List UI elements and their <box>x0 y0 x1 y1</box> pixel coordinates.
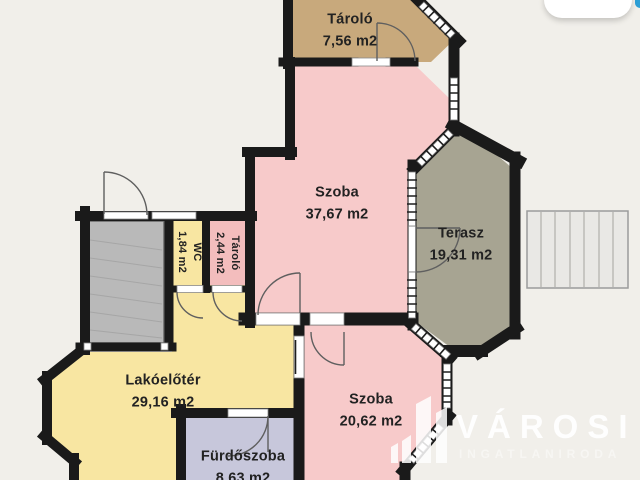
label-wc: WC1,84 m2 <box>174 231 204 273</box>
label-storage-top: Tároló7,56 m2 <box>323 9 378 53</box>
window-glazed-upper <box>407 172 417 226</box>
outdoor-stairs <box>527 211 628 288</box>
watermark-brand: VÁROSI <box>456 408 637 446</box>
label-large-bedroom: Szoba37,67 m2 <box>306 182 369 226</box>
window-glazed-lower <box>407 272 417 318</box>
toolbar-accent-button[interactable] <box>635 0 640 8</box>
window-bedroom2-west <box>294 336 304 378</box>
window-bedroom2-east <box>442 364 452 408</box>
window-bay-east <box>449 78 459 120</box>
label-bathroom: Fürdőszoba8,63 m2 <box>201 446 285 480</box>
floor-plan-page: Tároló7,56 m2 Szoba37,67 m2 Terasz19,31 … <box>0 0 640 480</box>
interior-staircase <box>88 221 164 343</box>
label-small-bedroom: Szoba20,62 m2 <box>340 389 403 433</box>
door-entrance <box>104 172 147 215</box>
toolbar-pill-button[interactable] <box>544 0 632 18</box>
watermark-tagline: INGATLANIRODA <box>459 447 621 461</box>
label-storage-small: Tároló2,44 m2 <box>212 232 242 274</box>
label-entrance-hall: Lakóelőtér29,16 m2 <box>125 370 200 414</box>
label-terrace: Terasz19,31 m2 <box>430 223 493 267</box>
